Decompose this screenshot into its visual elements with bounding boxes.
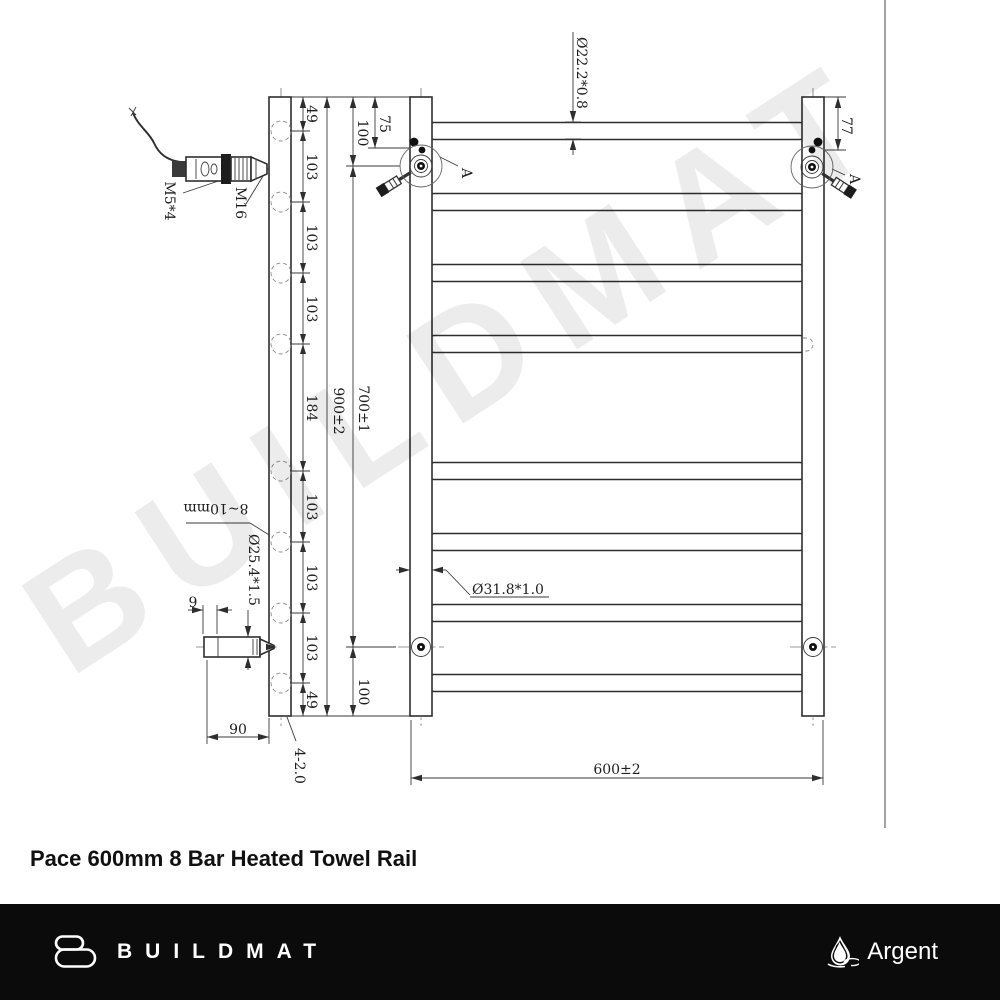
- dim-corner-note: 4-2.0: [291, 748, 307, 784]
- front-view-rails: [410, 97, 824, 716]
- footer-brand-text: BUILDMAT: [117, 940, 329, 964]
- dim-bracket-depth: 90: [229, 722, 247, 738]
- dim-mount-span: 700±1: [355, 385, 371, 432]
- dim-overall-height: 900±2: [330, 387, 346, 434]
- dim-gland-thread: M16: [232, 187, 248, 219]
- footer-subbrand-text: Argent: [867, 938, 938, 966]
- wall-bracket: [204, 637, 274, 657]
- dim-chain-3: 103: [303, 296, 319, 323]
- dim-right-offset: 77: [838, 117, 854, 135]
- spec-sheet-page: 49 103 103 103 184 103 103 103 49 900±2 …: [0, 0, 1000, 1000]
- dim-chain-2: 103: [303, 225, 319, 252]
- dim-element-thread: M5*4: [161, 181, 177, 220]
- detail-label-left: A: [458, 167, 474, 179]
- dim-top-offset: 100: [354, 120, 370, 147]
- dim-chain-8: 49: [303, 691, 319, 709]
- water-drop-icon: [825, 934, 859, 970]
- product-title: Pace 600mm 8 Bar Heated Towel Rail: [30, 846, 417, 872]
- heating-element: [129, 107, 267, 184]
- technical-drawing: 49 103 103 103 184 103 103 103 49 900±2 …: [0, 0, 1000, 842]
- footer-bar: BUILDMAT Argent: [0, 904, 1000, 1000]
- dim-chain-7: 103: [303, 635, 319, 662]
- detail-label-right: A: [846, 173, 862, 185]
- dim-width: 600±2: [593, 762, 640, 778]
- towel-b-icon: [53, 934, 101, 970]
- dim-bottom-offset: 100: [355, 679, 371, 706]
- dim-chain-5: 103: [303, 494, 319, 521]
- dimension-labels: 49 103 103 103 184 103 103 103 49 900±2 …: [161, 37, 862, 784]
- dim-chain-1: 103: [303, 154, 319, 181]
- dim-bracket-diameter: Ø25.4*1.5: [245, 534, 261, 606]
- dim-bar-diameter: Ø22.2*0.8: [573, 37, 589, 109]
- dim-chain-0: 49: [303, 105, 319, 123]
- dim-wall-gap-note: 8~10mm: [183, 500, 248, 516]
- dim-wall-thickness: 9: [189, 595, 198, 611]
- dim-rail-diameter: Ø31.8*1.0: [472, 582, 544, 598]
- towel-bars: [426, 123, 808, 692]
- dim-chain-4: 184: [303, 395, 319, 422]
- dim-switch-offset: 75: [376, 115, 392, 133]
- dim-chain-6: 103: [303, 565, 319, 592]
